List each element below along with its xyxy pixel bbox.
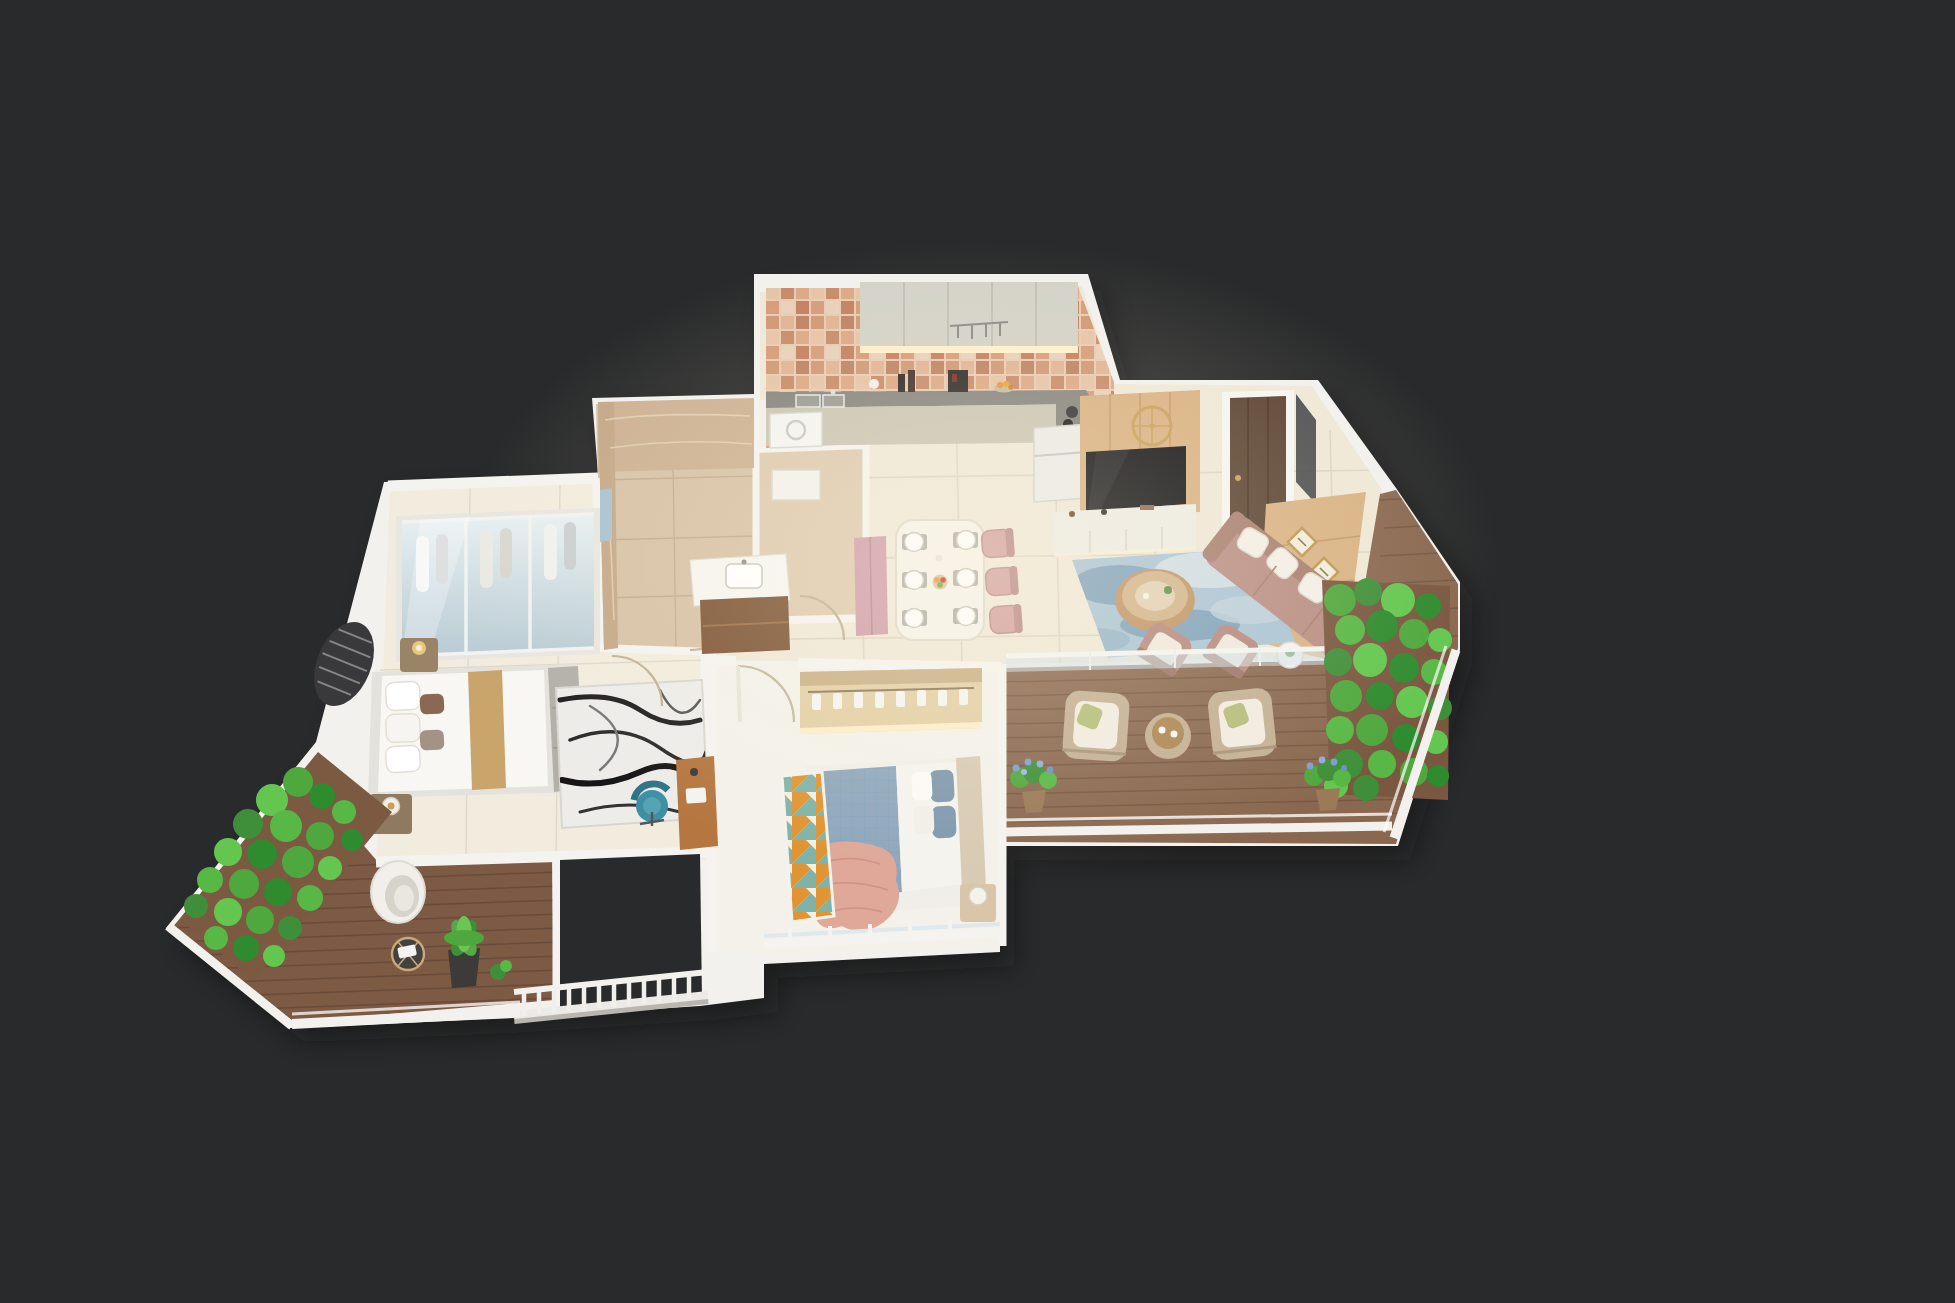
interior-light-glow bbox=[460, 240, 1500, 880]
lamp-2 bbox=[969, 887, 987, 905]
bed-runner bbox=[468, 670, 506, 790]
nightstand-north bbox=[400, 638, 438, 672]
floor-plan-stage bbox=[0, 0, 1955, 1303]
egg-chair bbox=[371, 861, 425, 923]
floor-plan-render bbox=[0, 0, 1955, 1303]
wire-side-table bbox=[392, 938, 424, 970]
nightstand-2 bbox=[960, 884, 996, 922]
